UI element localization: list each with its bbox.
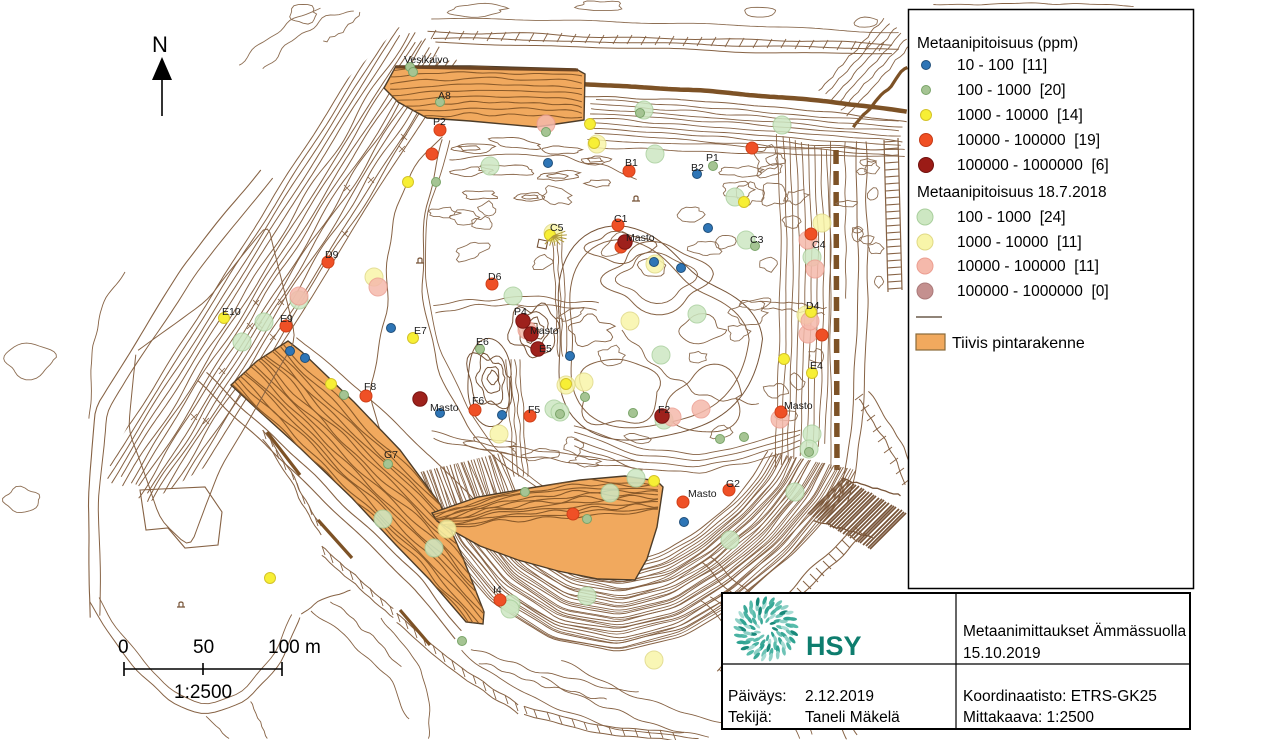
svg-text:Taneli Mäkelä: Taneli Mäkelä [805, 709, 900, 726]
svg-text:F2: F2 [658, 404, 670, 416]
svg-text:100 m: 100 m [268, 637, 321, 658]
svg-text:1000 - 10000 [11]: 1000 - 10000 [11] [957, 234, 1082, 251]
svg-text:P2: P2 [433, 116, 446, 128]
svg-text:P4: P4 [514, 306, 527, 318]
svg-text:C1: C1 [614, 213, 628, 225]
svg-text:100000 - 1000000 [0]: 100000 - 1000000 [0] [957, 283, 1109, 300]
svg-text:F5: F5 [528, 404, 540, 416]
svg-text:G2: G2 [726, 478, 740, 490]
svg-text:50: 50 [193, 637, 214, 658]
svg-text:Masto: Masto [530, 325, 559, 337]
svg-text:E4: E4 [810, 360, 823, 372]
svg-text:D9: D9 [325, 249, 339, 261]
svg-text:Masto: Masto [626, 232, 655, 244]
svg-text:E5: E5 [539, 343, 552, 355]
svg-text:Vesikaivo: Vesikaivo [404, 54, 449, 66]
svg-text:Koordinaatisto: ETRS-GK25: Koordinaatisto: ETRS-GK25 [963, 688, 1157, 705]
svg-text:100 - 1000 [20]: 100 - 1000 [20] [957, 82, 1066, 99]
svg-text:2.12.2019: 2.12.2019 [805, 688, 874, 705]
svg-text:C5: C5 [550, 222, 564, 234]
svg-text:10 - 100 [11]: 10 - 100 [11] [957, 57, 1047, 74]
svg-text:G7: G7 [384, 449, 398, 461]
svg-text:10000 - 100000 [11]: 10000 - 100000 [11] [957, 258, 1099, 275]
svg-text:Metaanimittaukset Ämmässuolla: Metaanimittaukset Ämmässuolla [963, 623, 1186, 640]
svg-text:Masto: Masto [784, 400, 813, 412]
svg-text:1:2500: 1:2500 [174, 682, 232, 703]
svg-text:Metaanipitoisuus 18.7.2018: Metaanipitoisuus 18.7.2018 [917, 184, 1107, 201]
svg-text:Metaanipitoisuus (ppm): Metaanipitoisuus (ppm) [917, 35, 1078, 52]
svg-text:F6: F6 [472, 395, 484, 407]
svg-text:D4: D4 [806, 300, 820, 312]
svg-text:100 - 1000 [24]: 100 - 1000 [24] [957, 209, 1066, 226]
svg-text:Tiivis pintarakenne: Tiivis pintarakenne [952, 335, 1085, 352]
svg-text:B2: B2 [691, 162, 704, 174]
svg-text:Mittakaava: 1:2500: Mittakaava: 1:2500 [963, 709, 1094, 726]
svg-text:0: 0 [118, 637, 129, 658]
svg-text:100000 - 1000000 [6]: 100000 - 1000000 [6] [957, 157, 1109, 174]
svg-text:A8: A8 [438, 90, 451, 102]
svg-text:Päiväys:: Päiväys: [728, 688, 787, 705]
svg-text:D6: D6 [488, 271, 502, 283]
svg-text:E9: E9 [280, 313, 293, 325]
svg-text:15.10.2019: 15.10.2019 [963, 645, 1041, 662]
svg-text:N: N [152, 32, 168, 57]
svg-text:Tekijä:: Tekijä: [728, 709, 772, 726]
svg-text:1000 - 10000 [14]: 1000 - 10000 [14] [957, 107, 1083, 124]
svg-text:I4: I4 [493, 584, 502, 596]
svg-text:HSY: HSY [806, 631, 862, 661]
svg-text:Masto: Masto [430, 402, 459, 414]
svg-text:B1: B1 [625, 157, 638, 169]
svg-text:10000 - 100000 [19]: 10000 - 100000 [19] [957, 132, 1100, 149]
svg-text:E10: E10 [222, 306, 241, 318]
svg-text:E7: E7 [414, 325, 427, 337]
svg-text:F8: F8 [364, 381, 376, 393]
svg-text:P1: P1 [706, 152, 719, 164]
svg-text:E6: E6 [476, 336, 489, 348]
svg-text:C4: C4 [812, 239, 826, 251]
svg-text:C3: C3 [750, 234, 764, 246]
svg-text:Masto: Masto [688, 488, 717, 500]
